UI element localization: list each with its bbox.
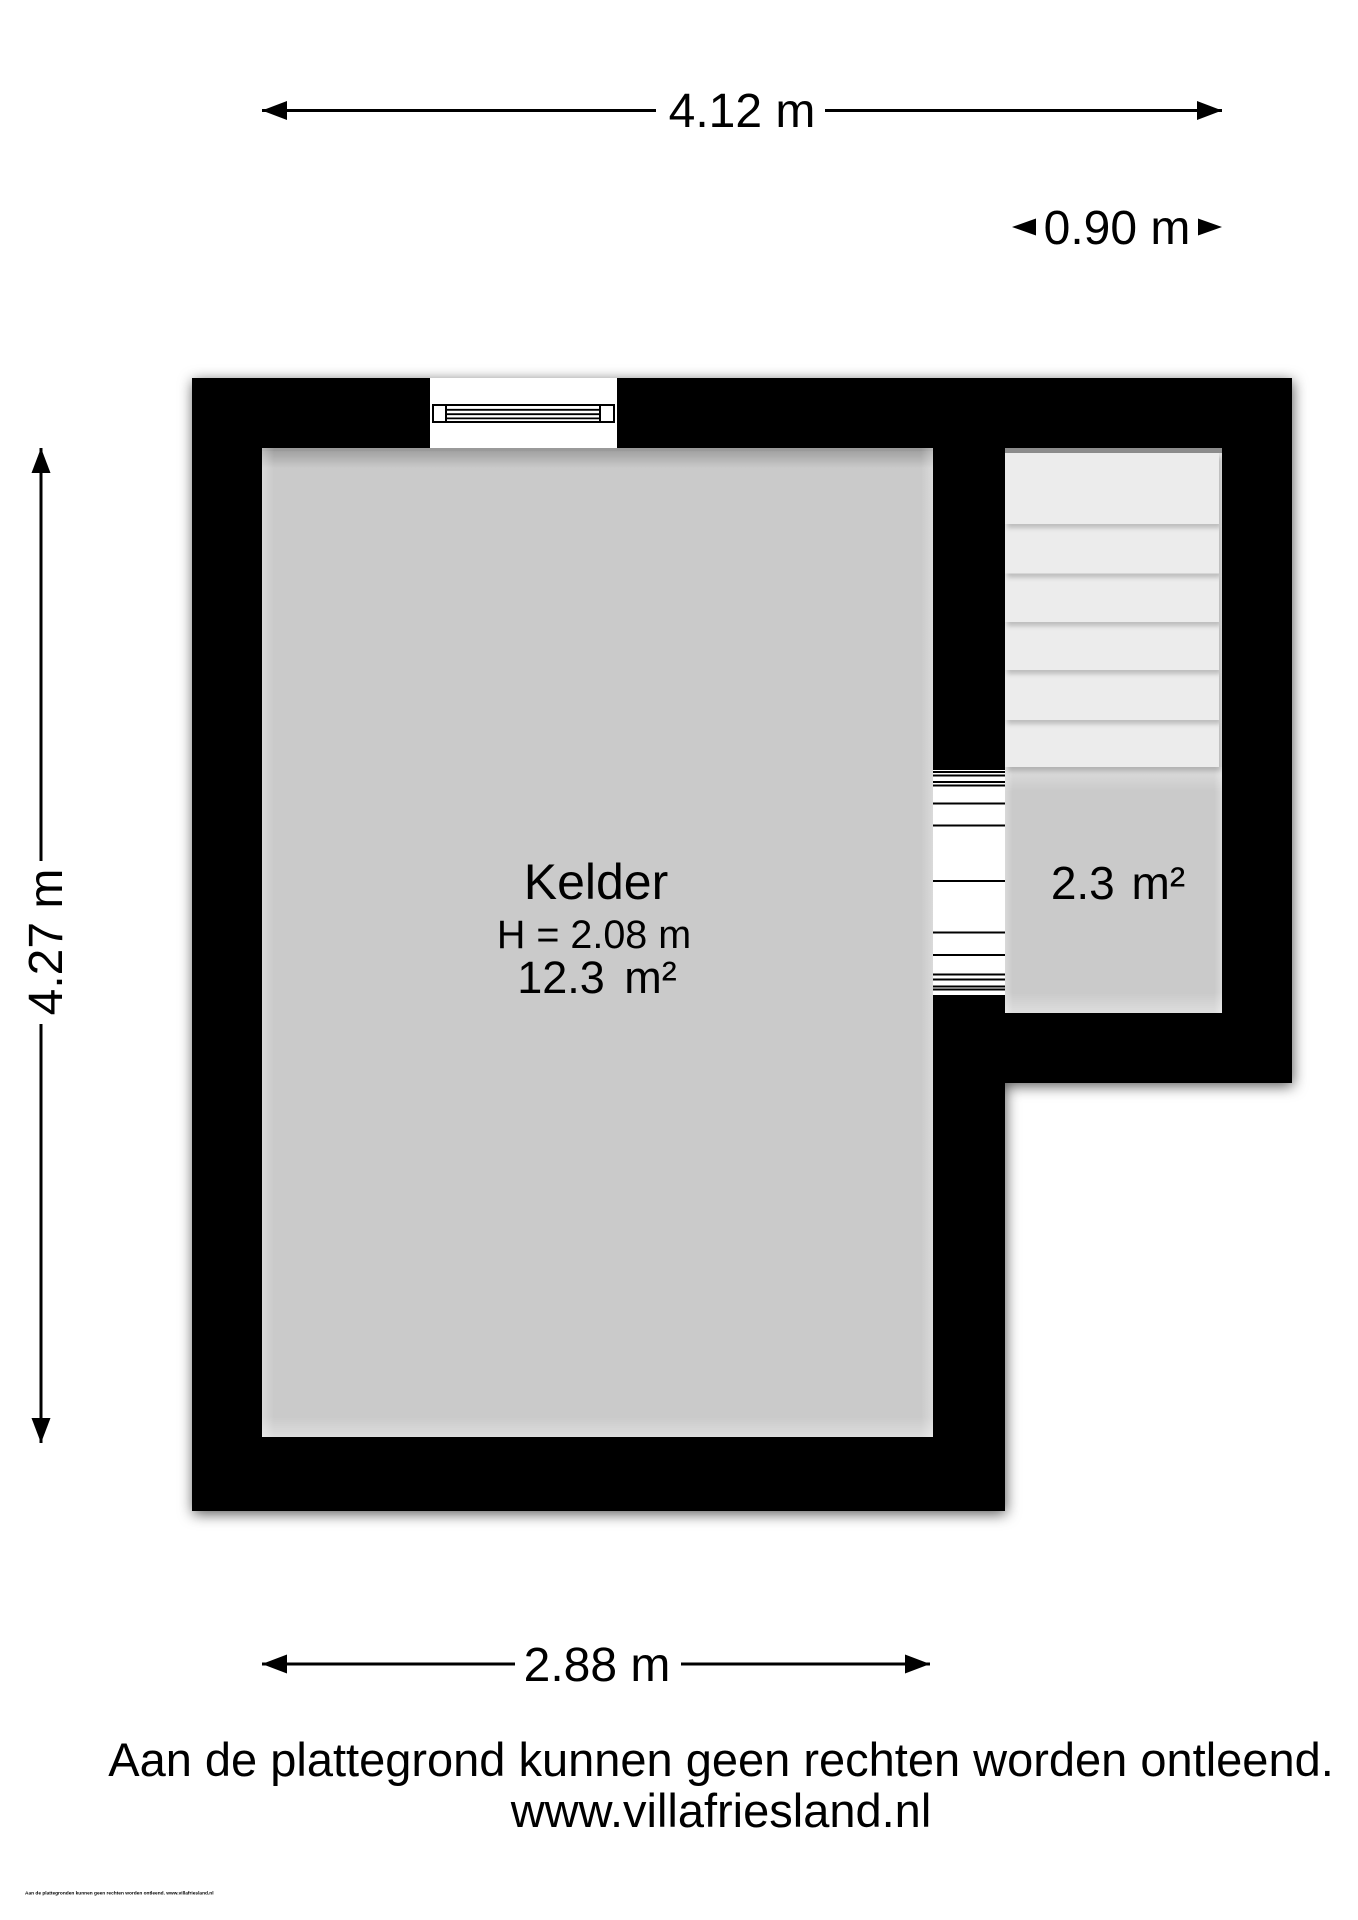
svg-text:4.12 m: 4.12 m bbox=[669, 85, 816, 138]
svg-text:12.3 m²: 12.3 m² bbox=[517, 952, 677, 1003]
svg-text:Aan de plattegronden kunnen ge: Aan de plattegronden kunnen geen rechten… bbox=[25, 1891, 214, 1897]
svg-text:Kelder: Kelder bbox=[524, 854, 669, 910]
svg-text:www.villafriesland.nl: www.villafriesland.nl bbox=[510, 1784, 932, 1837]
svg-text:2.88 m: 2.88 m bbox=[524, 1639, 671, 1692]
svg-text:4.27 m: 4.27 m bbox=[20, 869, 73, 1016]
svg-text:0.90 m: 0.90 m bbox=[1044, 202, 1191, 255]
svg-text:Aan de plattegrond kunnen geen: Aan de plattegrond kunnen geen rechten w… bbox=[108, 1733, 1334, 1786]
svg-text:2.3 m²: 2.3 m² bbox=[1051, 857, 1185, 909]
svg-text:H = 2.08 m: H = 2.08 m bbox=[497, 913, 691, 957]
